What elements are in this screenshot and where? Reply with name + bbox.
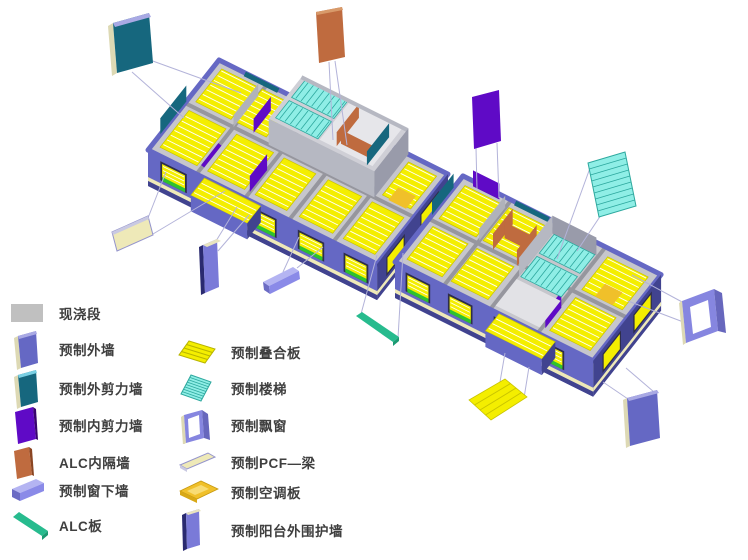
legend-item-exterior-wall: 预制外墙 [10, 328, 115, 370]
exterior-shear-wall-icon [10, 367, 48, 409]
cast-in-place-swatch [10, 303, 48, 323]
pcf-beam-icon [178, 450, 220, 474]
windowsill-wall-icon [10, 476, 48, 504]
legend-item-bay-window: 预制飘窗 [178, 406, 287, 444]
legend-item-stairs: 预制楼梯 [178, 373, 287, 403]
bay-window-float [679, 289, 726, 345]
windowsill-wall-float [263, 267, 300, 294]
alc-board-float [356, 312, 399, 346]
alc-board-icon [10, 509, 48, 541]
ac-panel-icon [178, 478, 220, 506]
legend-item-composite-slab: 预制叠合板 [178, 339, 301, 365]
balcony-enclosure-icon [178, 507, 220, 553]
legend-label: 预制楼梯 [231, 378, 287, 398]
legend-item-alc-board: ALC板 [10, 509, 102, 541]
legend-label: ALC板 [59, 515, 102, 535]
legend-item-exterior-shear-wall: 预制外剪力墙 [10, 367, 143, 409]
legend-label: 预制PCF—梁 [231, 452, 316, 472]
balcony-enclosure-float [199, 239, 221, 295]
interior-shear-wall-icon [10, 405, 48, 445]
stairs-icon [178, 373, 220, 403]
alc-partition-float [316, 7, 345, 63]
legend-item-cast-in-place: 现浇段 [10, 303, 101, 323]
legend-label: ALC内隔墙 [59, 452, 130, 472]
legend-label: 预制空调板 [231, 482, 301, 502]
interior-shear-wall-float [472, 90, 501, 149]
pcf-beam-float [112, 216, 153, 251]
alc-partition-icon [10, 444, 48, 480]
legend-label: 预制外剪力墙 [59, 378, 143, 398]
legend-label: 预制窗下墙 [59, 480, 129, 500]
bay-window-icon [178, 406, 220, 444]
legend-item-pcf-beam: 预制PCF—梁 [178, 450, 316, 474]
legend-item-balcony-enclosure: 预制阳台外围护墙 [178, 507, 343, 553]
diagram-canvas: 现浇段 预制外墙 预制外剪力墙 [0, 0, 748, 560]
legend-item-alc-partition: ALC内隔墙 [10, 444, 130, 480]
legend-label: 预制外墙 [59, 339, 115, 359]
legend-label: 预制叠合板 [231, 342, 301, 362]
legend-label: 预制飘窗 [231, 415, 287, 435]
legend-item-ac-panel: 预制空调板 [178, 478, 301, 506]
exterior-wall-icon [10, 328, 48, 370]
composite-slab-icon [178, 339, 220, 365]
legend-label: 预制内剪力墙 [59, 415, 143, 435]
legend-item-interior-shear-wall: 预制内剪力墙 [10, 405, 143, 445]
legend-label: 预制阳台外围护墙 [231, 520, 343, 540]
legend-item-windowsill-wall: 预制窗下墙 [10, 476, 129, 504]
exterior-shear-wall-float [108, 13, 153, 76]
composite-slab-float [469, 379, 527, 420]
exterior-wall-float [623, 390, 660, 448]
stairs-float [588, 152, 636, 217]
legend-label: 现浇段 [59, 303, 101, 323]
